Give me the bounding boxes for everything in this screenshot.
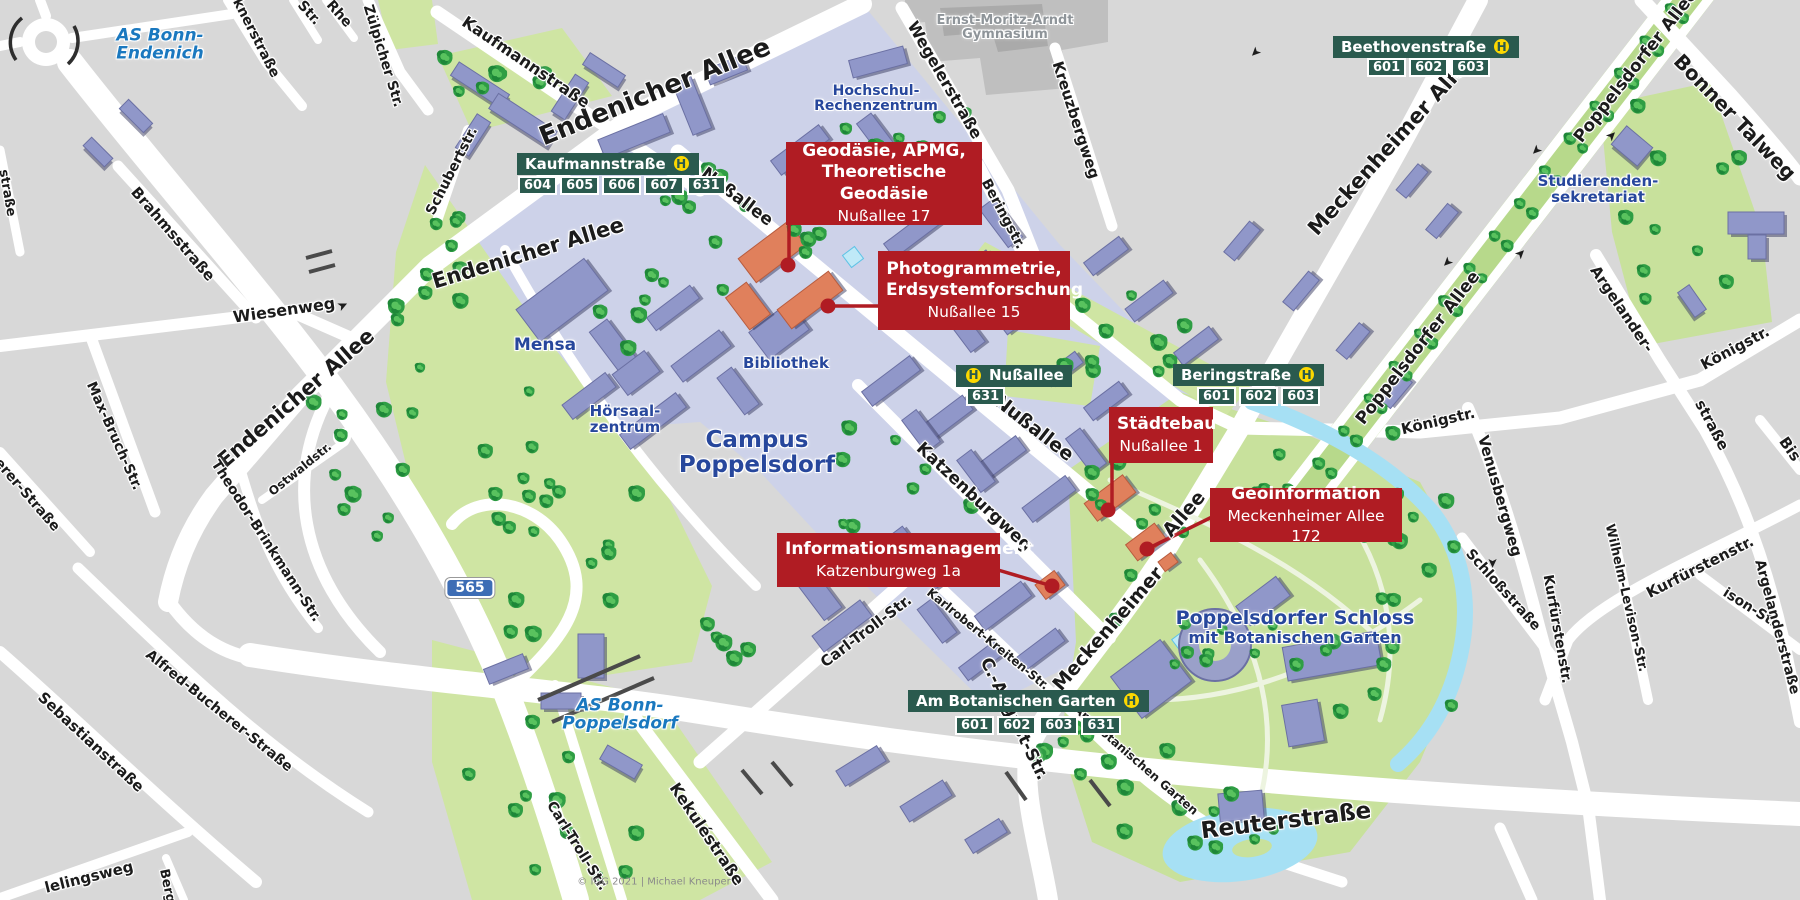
bus-stop-name-plate: HNußallee	[956, 365, 1072, 387]
bus-stop: BeethovenstraßeH	[1333, 36, 1519, 58]
bus-stop-name: Kaufmannstraße	[525, 155, 666, 173]
area-label: Mensa	[514, 336, 576, 354]
bus-stop-name: Beringstraße	[1181, 366, 1291, 384]
callout-title: Städtebau	[1117, 414, 1205, 435]
area-label: Ernst-Moritz-ArndtGymnasium	[936, 14, 1073, 42]
bus-stop-h-icon: H	[1297, 365, 1316, 384]
area-label: Bibliothek	[743, 355, 829, 371]
callout-address: Nußallee 1	[1117, 436, 1205, 456]
area-label: AS Bonn-Poppelsdorf	[562, 697, 678, 734]
bus-stop-name-plate: BeringstraßeH	[1173, 364, 1324, 386]
bus-stop-h-icon: H	[964, 366, 983, 385]
callout-title: Erdsystemforschung	[886, 280, 1062, 301]
bus-stop: BeringstraßeH	[1173, 364, 1324, 386]
callout-title: Geodäsie, APMG,	[794, 141, 974, 162]
bus-line-chips: 601602603	[1197, 387, 1320, 406]
callout-address: Katzenburgweg 1a	[785, 561, 992, 581]
bus-stop-name: Beethovenstraße	[1341, 38, 1486, 56]
map-artwork	[0, 0, 1800, 900]
bus-line-number: 631	[1081, 716, 1120, 735]
motorway-badge: 565	[445, 578, 494, 598]
bus-line-number: 631	[966, 387, 1005, 406]
institute-callout: GeoinformationMeckenheimer Allee 172	[1210, 488, 1402, 542]
bus-line-chips: 601602603	[1367, 58, 1490, 77]
bus-line-number: 603	[1281, 387, 1320, 406]
callout-title: Photogrammetrie,	[886, 259, 1062, 280]
area-label: Hörsaal-zentrum	[590, 403, 661, 435]
institute-callout: InformationsmanagementKatzenburgweg 1a	[777, 533, 1000, 587]
area-label: Poppelsdorfer Schlossmit Botanischen Gar…	[1176, 608, 1415, 646]
bus-stop-name: Nußallee	[989, 366, 1064, 384]
bus-line-number: 606	[602, 176, 641, 195]
bus-line-number: 602	[1409, 58, 1448, 77]
bus-stop-h-icon: H	[1492, 37, 1511, 56]
area-label: CampusPoppelsdorf	[679, 428, 835, 478]
campus-map: Endenicher AlleeEndenicher AlleeEndenich…	[0, 0, 1800, 900]
bus-stop: KaufmannstraßeH	[517, 153, 699, 175]
institute-callout: Photogrammetrie,ErdsystemforschungNußall…	[878, 251, 1070, 330]
bus-stop-name-plate: KaufmannstraßeH	[517, 153, 699, 175]
callout-title: Theoretische Geodäsie	[794, 162, 974, 205]
area-label: Hochschul-Rechenzentrum	[814, 84, 938, 114]
bus-line-number: 602	[997, 716, 1036, 735]
callout-address: Meckenheimer Allee 172	[1218, 506, 1394, 546]
bus-line-number: 603	[1451, 58, 1490, 77]
bus-line-number: 607	[644, 176, 683, 195]
bus-line-chips: 604605606607631	[518, 176, 726, 195]
bus-line-number: 601	[955, 716, 994, 735]
bus-line-number: 631	[687, 176, 726, 195]
area-label: AS Bonn-Endenich	[116, 27, 204, 64]
bus-stop: Am Botanischen GartenH	[908, 690, 1149, 712]
bus-line-chips: 631	[966, 387, 1005, 406]
institute-callout: Geodäsie, APMG,Theoretische GeodäsieNußa…	[786, 142, 982, 225]
bus-stop-name: Am Botanischen Garten	[916, 692, 1116, 710]
one-way-arrow-icon: ➤	[1485, 558, 1500, 569]
bus-line-number: 602	[1239, 387, 1278, 406]
copyright-text: © IGG 2021 | Michael Kneuper	[577, 877, 730, 888]
bus-line-number: 601	[1197, 387, 1236, 406]
bus-line-number: 601	[1367, 58, 1406, 77]
bus-stop: HNußallee	[956, 364, 1072, 387]
area-label: Studierenden-sekretariat	[1538, 173, 1659, 205]
bus-stop-name-plate: Am Botanischen GartenH	[908, 690, 1149, 712]
callout-title: Geoinformation	[1218, 484, 1394, 505]
bus-stop-h-icon: H	[1122, 691, 1141, 710]
bus-stop-name-plate: BeethovenstraßeH	[1333, 36, 1519, 58]
bus-stop-h-icon: H	[672, 154, 691, 173]
institute-callout: StädtebauNußallee 1	[1109, 407, 1213, 463]
callout-address: Nußallee 15	[886, 302, 1062, 322]
bus-line-number: 604	[518, 176, 557, 195]
bus-line-chips: 601602603631	[955, 716, 1121, 735]
callout-title: Informationsmanagement	[785, 539, 992, 560]
bus-line-number: 605	[560, 176, 599, 195]
callout-address: Nußallee 17	[794, 206, 974, 226]
bus-line-number: 603	[1039, 716, 1078, 735]
